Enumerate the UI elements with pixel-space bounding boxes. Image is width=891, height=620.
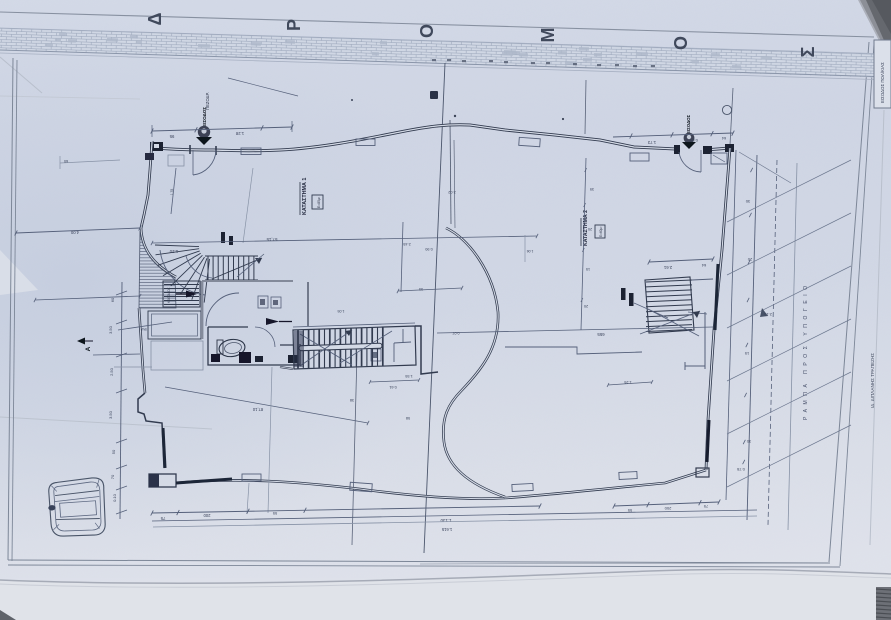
svg-text:70: 70 (110, 474, 115, 479)
svg-text:1.28: 1.28 (235, 131, 244, 136)
svg-text:95: 95 (169, 134, 174, 139)
svg-text:5Ψ: 5Ψ (141, 327, 147, 332)
svg-text:64: 64 (701, 263, 706, 268)
svg-text:55: 55 (272, 511, 277, 516)
svg-text:75: 75 (160, 516, 165, 521)
svg-text:2.02: 2.02 (448, 190, 455, 194)
svg-text:1.20: 1.20 (169, 249, 178, 254)
svg-text:1.73: 1.73 (647, 140, 656, 145)
svg-text:39: 39 (590, 187, 594, 191)
svg-text:1.55: 1.55 (405, 374, 412, 378)
svg-text:57,15: 57,15 (266, 237, 278, 242)
svg-text:0.07: 0.07 (453, 331, 460, 335)
svg-text:655: 655 (597, 332, 605, 337)
svg-text:0.61: 0.61 (389, 385, 396, 389)
svg-text:15: 15 (744, 351, 749, 356)
svg-text:Ρ: Ρ (284, 19, 304, 31)
svg-text:0.90: 0.90 (425, 247, 432, 251)
svg-text:200: 200 (203, 513, 211, 518)
svg-text:15: 15 (586, 267, 590, 271)
svg-text:30: 30 (746, 439, 751, 444)
svg-text:58: 58 (406, 416, 410, 420)
svg-text:1.78: 1.78 (170, 189, 174, 196)
svg-text:Ο: Ο (417, 24, 437, 38)
svg-text:1.25: 1.25 (624, 380, 631, 384)
svg-text:Ο: Ο (671, 36, 691, 50)
svg-text:60: 60 (110, 297, 115, 302)
svg-text:20: 20 (588, 227, 592, 231)
svg-text:2.61: 2.61 (663, 265, 672, 270)
svg-text:20: 20 (584, 304, 588, 308)
svg-text:2.50: 2.50 (109, 367, 114, 376)
svg-text:2.45: 2.45 (403, 242, 410, 246)
svg-text:87,10: 87,10 (252, 407, 263, 412)
svg-text:ΕΙΣΟΔΟΣ: ΕΙΣΟΔΟΣ (686, 114, 691, 134)
svg-text:ΚΑΤΑΣΤΗΜΑ 1: ΚΑΤΑΣΤΗΜΑ 1 (302, 178, 308, 215)
svg-text:3.50: 3.50 (108, 325, 113, 334)
svg-text:4.00: 4.00 (70, 230, 79, 235)
svg-text:1.05: 1.05 (338, 309, 345, 313)
svg-text:0.93: 0.93 (689, 138, 698, 143)
svg-text:Σ: Σ (798, 46, 818, 57)
svg-text:Ε=60μ²: Ε=60μ² (599, 227, 603, 237)
svg-text:ΕΙΣΟΔΟΣ: ΕΙΣΟΔΟΣ (202, 107, 207, 127)
svg-text:200: 200 (664, 506, 671, 511)
svg-text:38: 38 (350, 398, 354, 402)
svg-text:1.06: 1.06 (527, 249, 534, 253)
svg-text:3.50: 3.50 (108, 410, 113, 419)
svg-text:Μ: Μ (538, 28, 558, 43)
svg-text:75: 75 (703, 504, 708, 509)
svg-text:Ε=85μ²: Ε=85μ² (317, 196, 321, 208)
svg-text:30: 30 (745, 199, 750, 204)
svg-text:0.10: 0.10 (112, 493, 117, 502)
svg-text:A: A (85, 346, 92, 351)
svg-text:Δ: Δ (145, 12, 165, 25)
svg-text:55: 55 (419, 287, 423, 291)
svg-text:60: 60 (64, 159, 68, 163)
svg-text:64: 64 (722, 136, 726, 140)
svg-text:ΚΑΘΟΔΟΣ: ΚΑΘΟΔΟΣ (167, 287, 171, 303)
svg-text:1.615: 1.615 (441, 527, 452, 532)
svg-text:ΕΙΣΟΔΟΣ ΠΟΛ/ΚΙΑΣ: ΕΙΣΟΔΟΣ ΠΟΛ/ΚΙΑΣ (880, 62, 885, 103)
svg-text:ΡΑΜΠΑ ΠΡΟΣ ΥΠΟΓΕΙΟ: ΡΑΜΠΑ ΠΡΟΣ ΥΠΟΓΕΙΟ (803, 281, 809, 420)
svg-text:50: 50 (111, 449, 116, 454)
svg-text:0.78: 0.78 (736, 467, 745, 472)
svg-text:1.130: 1.130 (440, 518, 452, 523)
